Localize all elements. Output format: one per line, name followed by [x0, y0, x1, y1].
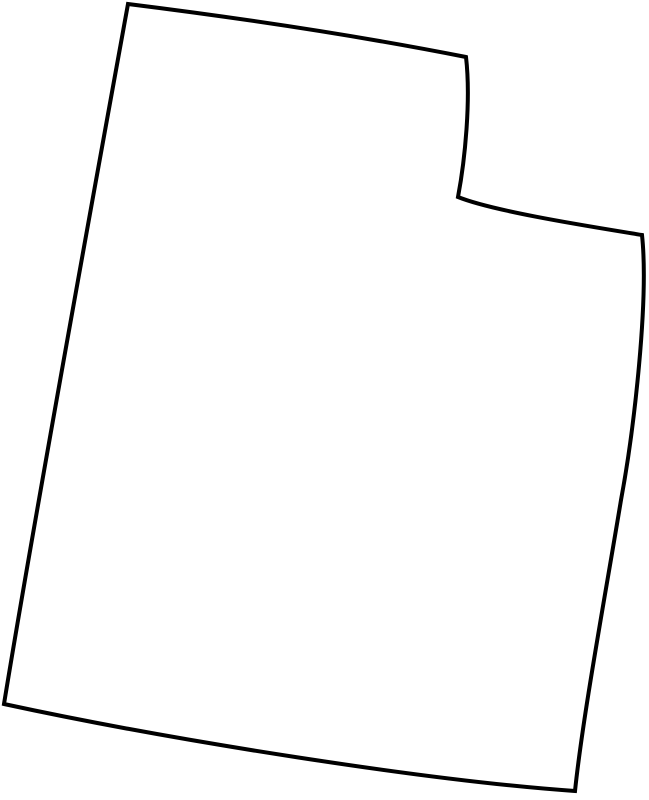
utah-state-outline-map	[0, 0, 649, 800]
state-border-path	[4, 4, 644, 791]
map-canvas	[0, 0, 649, 800]
